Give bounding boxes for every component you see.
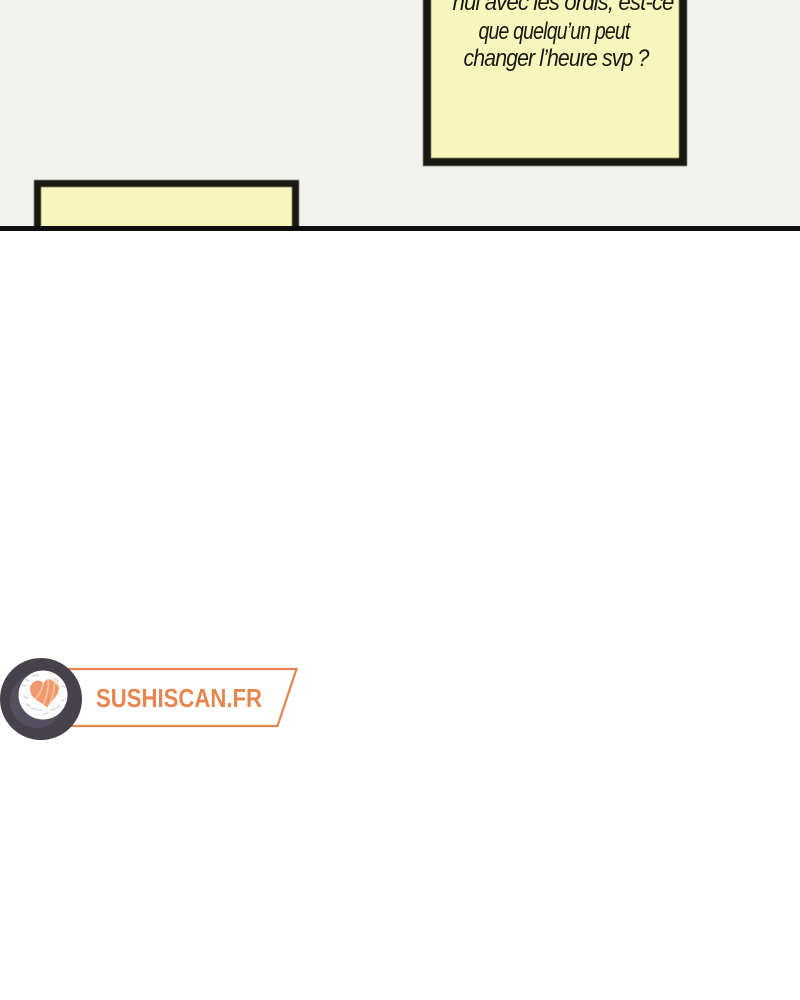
svg-text:SUSHISCAN.FR: SUSHISCAN.FR [96,683,262,713]
